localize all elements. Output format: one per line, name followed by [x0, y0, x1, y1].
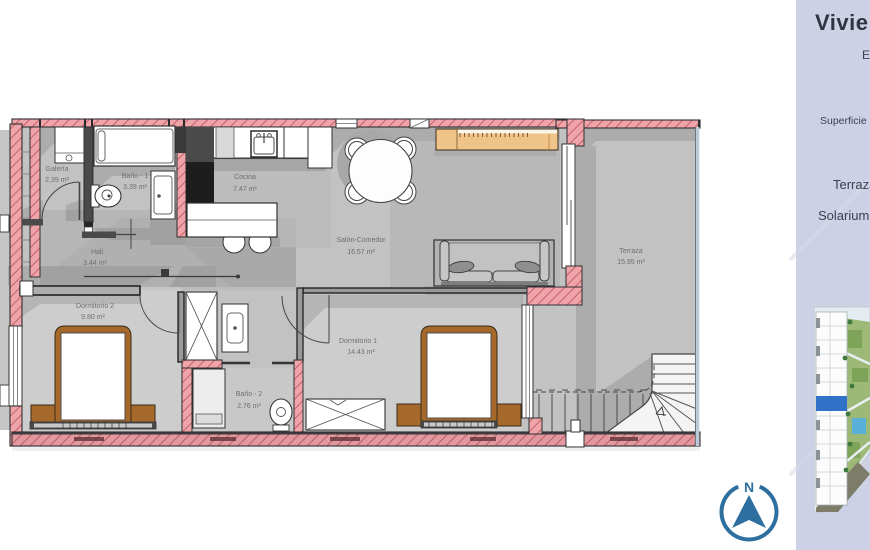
svg-text:Vivienda: Vivienda — [815, 10, 870, 35]
svg-text:3.44 m²: 3.44 m² — [83, 260, 107, 267]
svg-text:Terraza:: Terraza: — [833, 177, 870, 192]
svg-text:Dormitorio 1: Dormitorio 1 — [339, 338, 377, 345]
svg-text:15.95 m²: 15.95 m² — [617, 259, 645, 266]
svg-text:N: N — [744, 479, 754, 495]
svg-text:2.76 m²: 2.76 m² — [237, 403, 261, 410]
svg-text:7.47 m²: 7.47 m² — [233, 186, 257, 193]
svg-text:Galería: Galería — [46, 166, 69, 173]
svg-text:3.39 m²: 3.39 m² — [123, 184, 147, 191]
svg-text:Terraza: Terraza — [619, 248, 642, 255]
svg-text:Hall: Hall — [91, 249, 104, 256]
svg-text:Dormitorio 2: Dormitorio 2 — [76, 303, 114, 310]
svg-text:Cocina: Cocina — [234, 174, 256, 181]
svg-text:Baño - 1: Baño - 1 — [122, 173, 149, 180]
svg-text:Superficie construida: Superficie construida — [820, 115, 870, 127]
svg-text:2.39 m²: 2.39 m² — [45, 177, 69, 184]
svg-text:Baño - 2: Baño - 2 — [236, 391, 263, 398]
svg-text:Solarium: Solarium — [818, 208, 869, 223]
svg-text:Salón-Comedor: Salón-Comedor — [336, 237, 386, 244]
svg-text:14.43 m²: 14.43 m² — [347, 349, 375, 356]
svg-text:Edificio: Edificio — [862, 48, 870, 62]
svg-text:16.57 m²: 16.57 m² — [347, 249, 375, 256]
svg-text:9.80 m²: 9.80 m² — [81, 314, 105, 321]
